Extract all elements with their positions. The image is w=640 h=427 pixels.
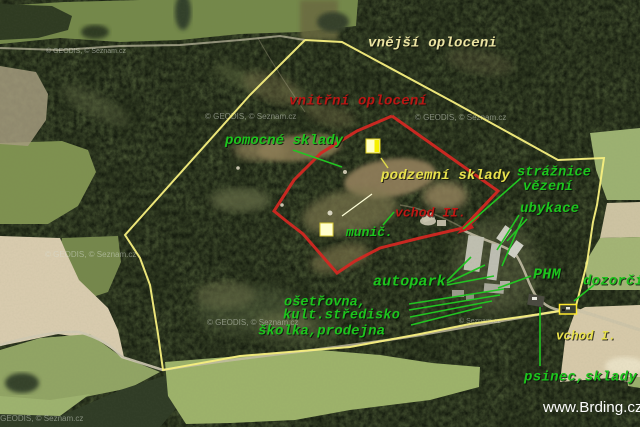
svg-text:strážnice: strážnice — [517, 166, 591, 181]
svg-text:vnější oploceni: vnější oploceni — [368, 36, 497, 52]
svg-text:školka,prodejna: školka,prodejna — [258, 324, 385, 340]
svg-text:podzemní sklady: podzemní sklady — [380, 168, 510, 184]
svg-text:munič.: munič. — [345, 225, 393, 240]
svg-text:vchod II.: vchod II. — [395, 206, 466, 221]
svg-text:PHM: PHM — [533, 267, 562, 284]
svg-text:www.Brding.cz: www.Brding.cz — [542, 399, 640, 416]
svg-text:vězení: vězení — [523, 180, 573, 195]
svg-text:psinec,sklady: psinec,sklady — [523, 370, 637, 386]
svg-text:kult.středisko: kult.středisko — [283, 309, 400, 324]
svg-text:dozorčí: dozorčí — [583, 274, 640, 290]
svg-text:© GEODIS, © Seznam.cz: © GEODIS, © Seznam.cz — [45, 250, 136, 259]
svg-text:© GEODIS, © Seznam.cz: © GEODIS, © Seznam.cz — [205, 112, 296, 121]
svg-text:© GEODIS, © Seznam.cz: © GEODIS, © Seznam.cz — [415, 113, 506, 122]
svg-text:vnitřní oplocení: vnitřní oplocení — [289, 94, 427, 110]
svg-text:ubykace: ubykace — [520, 201, 579, 217]
svg-text:pomocné sklady: pomocné sklady — [224, 133, 344, 149]
svg-text:autopark: autopark — [373, 274, 447, 291]
svg-text:© GEODIS, © Seznam.cz: © GEODIS, © Seznam.cz — [0, 414, 83, 423]
svg-text:© GEODIS, © Seznam.cz: © GEODIS, © Seznam.cz — [46, 47, 126, 55]
svg-text:vchod I.: vchod I. — [556, 330, 616, 344]
